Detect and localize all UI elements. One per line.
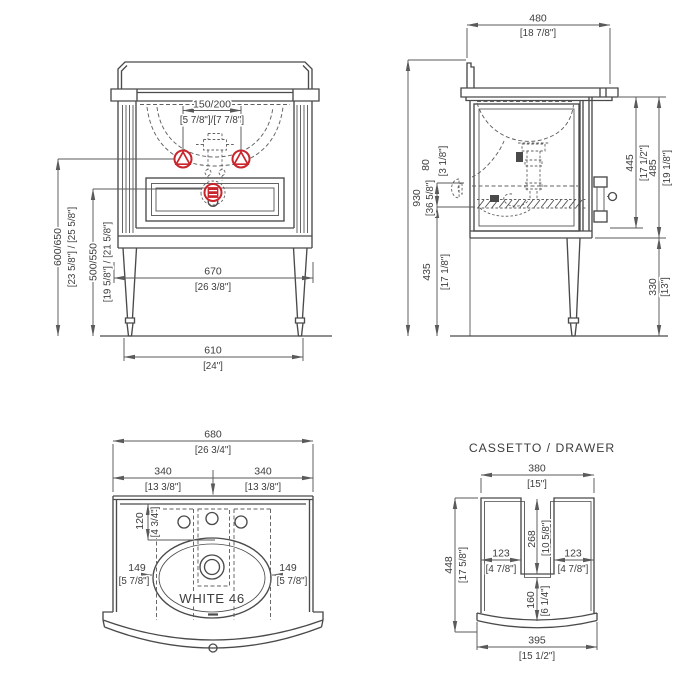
dim-total-height-inch: [36 5/8"] bbox=[425, 180, 436, 216]
dim-drawer-bottom-width-mm: 395 bbox=[528, 635, 546, 647]
dim-drain-height-side-mm: 435 bbox=[421, 263, 433, 281]
dim-side-to-basin-right-inch: [5 7/8"] bbox=[277, 576, 308, 587]
dim-side-to-basin-left-inch: [5 7/8"] bbox=[119, 576, 150, 587]
dim-half-width-left-mm: 340 bbox=[154, 466, 172, 478]
side-panel-outer bbox=[474, 104, 579, 231]
dim-depth-mm: 480 bbox=[529, 13, 547, 25]
side-drawer-front-molding bbox=[594, 177, 617, 222]
drawer-view: CASSETTO / DRAWER 380 [15"] 448 bbox=[443, 441, 615, 662]
top-faucet-holes bbox=[178, 513, 247, 529]
dim-total-height-mm: 930 bbox=[411, 189, 423, 207]
dim-cutout-depth-inch: [10 5/8"] bbox=[541, 520, 552, 556]
dim-top-width-inch: [26 3/8"] bbox=[195, 282, 231, 293]
top-basin-outer bbox=[153, 538, 271, 618]
side-dimension-labels: 480 [18 7/8"] 930 [36 5/8"] 80 [3 1/8"] … bbox=[411, 13, 673, 297]
dim-depth-inch: [18 7/8"] bbox=[520, 28, 556, 39]
side-leg bbox=[567, 238, 580, 336]
model-label: WHITE 46 bbox=[179, 591, 245, 606]
side-view: 480 [18 7/8"] 930 [36 5/8"] 80 [3 1/8"] … bbox=[408, 13, 673, 337]
side-countertop bbox=[461, 88, 618, 101]
dim-half-width-left-inch: [13 3/8"] bbox=[145, 482, 181, 493]
drawer-view-title: CASSETTO / DRAWER bbox=[469, 441, 615, 455]
dim-drawer-bottom-width-inch: [15 1/2"] bbox=[519, 651, 555, 662]
dim-hole-setback-inch: [4 3/4"] bbox=[150, 506, 161, 537]
dim-drawer-top-width-inch: [15"] bbox=[527, 479, 547, 490]
dim-drain-height-side-inch: [17 1/8"] bbox=[440, 254, 451, 290]
top-drain-hole bbox=[200, 555, 224, 579]
dim-drain-height-inch: [19 5/8"] / [21 5/8"] bbox=[103, 221, 114, 302]
dim-leg-height-mm: 330 bbox=[647, 278, 659, 296]
dim-overall-width-mm: 680 bbox=[204, 429, 222, 441]
vanity-technical-drawing: 150/200 [5 7/8"]/[7 7/8"] 600/650 [23 5/… bbox=[0, 0, 700, 700]
drain-symbol bbox=[205, 184, 222, 201]
dim-drain-height-mm: 500/550 bbox=[88, 243, 100, 281]
dim-overall-width-inch: [26 3/4"] bbox=[195, 445, 231, 456]
dim-feet-span-mm: 610 bbox=[204, 345, 222, 357]
side-supply-fitting bbox=[516, 152, 523, 162]
front-basin-hidden-outline bbox=[140, 105, 290, 167]
dim-supply-height-mm: 600/650 bbox=[52, 228, 64, 266]
front-view: 150/200 [5 7/8"]/[7 7/8"] 600/650 [23 5/… bbox=[52, 62, 332, 372]
supply-valve-symbol-right bbox=[233, 151, 250, 168]
supply-valve-symbol-left bbox=[175, 151, 192, 168]
dim-half-width-right-mm: 340 bbox=[254, 466, 272, 478]
dim-top-width-mm: 670 bbox=[204, 266, 222, 278]
dim-leg-height-inch: [13"] bbox=[660, 277, 671, 297]
dim-arm-width-left-mm: 123 bbox=[492, 548, 510, 560]
dim-body-height-mm: 485 bbox=[647, 159, 659, 177]
dim-arm-width-right-inch: [4 7/8"] bbox=[558, 564, 589, 575]
dim-half-width-right-inch: [13 3/8"] bbox=[245, 482, 281, 493]
dim-drawer-depth-inch: [17 5/8"] bbox=[458, 547, 469, 583]
top-view: 680 [26 3/4"] 340 [13 3/8"] 340 [13 3/8"… bbox=[103, 429, 323, 653]
side-basin-hidden bbox=[472, 102, 578, 187]
dim-drawer-top-width-mm: 380 bbox=[528, 463, 546, 475]
dim-arm-width-left-inch: [4 7/8"] bbox=[486, 564, 517, 575]
dim-faucet-spacing-inch: [5 7/8"]/[7 7/8"] bbox=[180, 115, 244, 126]
front-backsplash bbox=[118, 62, 312, 89]
dim-faucet-spacing-mm: 150/200 bbox=[193, 99, 231, 111]
dim-arm-width-right-mm: 123 bbox=[564, 548, 582, 560]
front-dimension-labels: 150/200 [5 7/8"]/[7 7/8"] 600/650 [23 5/… bbox=[52, 99, 244, 373]
side-backsplash bbox=[467, 63, 474, 88]
side-trap-valve bbox=[490, 195, 499, 202]
dim-side-to-basin-right-mm: 149 bbox=[279, 562, 297, 574]
technical-drawing-page: 150/200 [5 7/8"]/[7 7/8"] 600/650 [23 5/… bbox=[0, 0, 700, 700]
dim-body-height-inch: [19 1/8"] bbox=[662, 150, 673, 186]
dim-supply-offset-inch: [3 1/8"] bbox=[438, 145, 449, 176]
dim-side-to-basin-left-mm: 149 bbox=[128, 562, 146, 574]
dim-drawer-depth-mm: 448 bbox=[443, 556, 455, 574]
front-dimensions bbox=[58, 106, 313, 361]
dim-front-gap-inch: [6 1/4"] bbox=[540, 585, 551, 616]
dim-front-gap-mm: 160 bbox=[525, 591, 537, 609]
dim-cutout-depth-mm: 268 bbox=[526, 530, 538, 548]
side-drawer-knob bbox=[609, 193, 617, 201]
dim-supply-height-inch: [23 5/8"] / [25 5/8"] bbox=[67, 206, 78, 287]
dim-hole-setback-mm: 120 bbox=[134, 512, 146, 530]
dim-feet-span-inch: [24"] bbox=[203, 361, 223, 372]
dim-supply-offset-mm: 80 bbox=[420, 159, 432, 171]
dim-front-height-mm: 445 bbox=[624, 154, 636, 172]
